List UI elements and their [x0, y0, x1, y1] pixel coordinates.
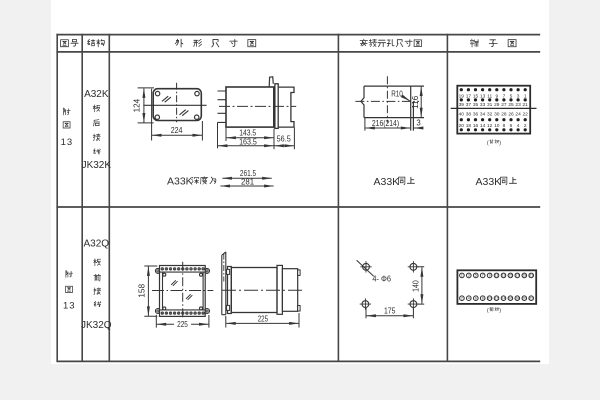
svg-text:281: 281 [241, 178, 254, 187]
svg-text:10: 10 [494, 123, 500, 129]
svg-text:4: 4 [468, 297, 470, 301]
svg-text:12: 12 [487, 123, 493, 129]
svg-text:31: 31 [487, 102, 493, 108]
svg-text:7: 7 [503, 93, 506, 99]
svg-text:38: 38 [466, 112, 472, 118]
svg-text:26: 26 [508, 112, 514, 118]
svg-text:124: 124 [133, 98, 142, 112]
svg-text:116: 116 [411, 96, 420, 109]
svg-text:35: 35 [473, 102, 479, 108]
svg-text:8: 8 [482, 297, 484, 301]
svg-text:2: 2 [524, 123, 527, 129]
svg-text:56.5: 56.5 [277, 134, 292, 143]
svg-text:6: 6 [475, 297, 477, 301]
svg-text:21: 21 [529, 274, 533, 278]
svg-text:22: 22 [529, 297, 533, 301]
svg-text:27: 27 [501, 102, 507, 108]
svg-text:17: 17 [466, 93, 472, 99]
svg-text:2: 2 [461, 297, 463, 301]
svg-text:16: 16 [473, 123, 479, 129]
svg-text:28: 28 [501, 112, 507, 118]
svg-text:14: 14 [480, 123, 486, 129]
svg-text:1: 1 [524, 93, 527, 99]
svg-text:A32K: A32K [84, 89, 109, 100]
svg-text:34: 34 [480, 112, 486, 118]
svg-text:12: 12 [495, 297, 499, 301]
svg-text:36: 36 [473, 112, 479, 118]
svg-text:13: 13 [61, 137, 74, 148]
svg-text:3: 3 [416, 119, 420, 128]
svg-text:225: 225 [177, 320, 188, 329]
svg-text:216(214): 216(214) [372, 119, 400, 128]
svg-text:4- Φ6: 4- Φ6 [372, 275, 391, 284]
svg-text:A33K: A33K [374, 176, 400, 188]
svg-text:143.5: 143.5 [239, 129, 257, 138]
svg-text:JK32K: JK32K [82, 160, 112, 171]
svg-text:15: 15 [473, 93, 479, 99]
svg-text:140: 140 [411, 280, 420, 292]
svg-text:18: 18 [466, 123, 472, 129]
svg-text:23: 23 [515, 102, 521, 108]
svg-text:9: 9 [495, 93, 498, 99]
svg-text:14: 14 [502, 297, 506, 301]
svg-text:24: 24 [515, 112, 521, 118]
svg-text:17: 17 [515, 274, 519, 278]
svg-text:30: 30 [494, 112, 500, 118]
svg-text:163.5: 163.5 [239, 138, 257, 147]
svg-text:33: 33 [480, 102, 486, 108]
svg-text:R10: R10 [391, 89, 403, 98]
svg-text:3: 3 [468, 274, 470, 278]
svg-text:158: 158 [137, 284, 146, 298]
svg-text:29: 29 [494, 102, 500, 108]
svg-text:18: 18 [515, 297, 519, 301]
svg-text:): ) [499, 140, 501, 146]
svg-text:20: 20 [522, 297, 526, 301]
svg-text:7: 7 [482, 274, 484, 278]
svg-text:37: 37 [466, 102, 472, 108]
svg-text:A33K: A33K [167, 176, 193, 188]
svg-text:A33K: A33K [476, 176, 502, 188]
svg-text:5: 5 [475, 274, 477, 278]
svg-text:175: 175 [384, 307, 396, 316]
svg-text:): ) [499, 308, 501, 314]
svg-text:13: 13 [63, 301, 76, 312]
svg-text:8: 8 [503, 123, 506, 129]
svg-text:21: 21 [523, 102, 529, 108]
svg-text:3: 3 [517, 93, 520, 99]
svg-text:11: 11 [487, 93, 492, 99]
svg-text:6: 6 [510, 123, 513, 129]
svg-text:19: 19 [522, 274, 526, 278]
svg-text:JK32Q: JK32Q [81, 320, 112, 331]
svg-text:A32Q: A32Q [84, 239, 110, 250]
svg-text:39: 39 [459, 102, 465, 108]
svg-text:1: 1 [461, 274, 463, 278]
svg-text:224: 224 [171, 126, 183, 135]
svg-text:(: ( [487, 140, 489, 146]
svg-text:20: 20 [459, 123, 465, 129]
svg-text:(: ( [487, 308, 489, 314]
svg-text:22: 22 [523, 112, 529, 118]
svg-text:11: 11 [495, 274, 499, 278]
svg-text:225: 225 [258, 314, 269, 323]
svg-text:5: 5 [510, 93, 513, 99]
svg-text:16: 16 [508, 297, 512, 301]
svg-text:32: 32 [487, 112, 493, 118]
svg-text:4: 4 [517, 123, 520, 129]
svg-text:13: 13 [480, 93, 486, 99]
svg-text:10: 10 [488, 297, 492, 301]
svg-text:19: 19 [459, 93, 465, 99]
svg-text:13: 13 [502, 274, 506, 278]
svg-text:15: 15 [508, 274, 512, 278]
svg-text:9: 9 [489, 274, 491, 278]
svg-text:40: 40 [459, 112, 465, 118]
svg-text:25: 25 [508, 102, 514, 108]
